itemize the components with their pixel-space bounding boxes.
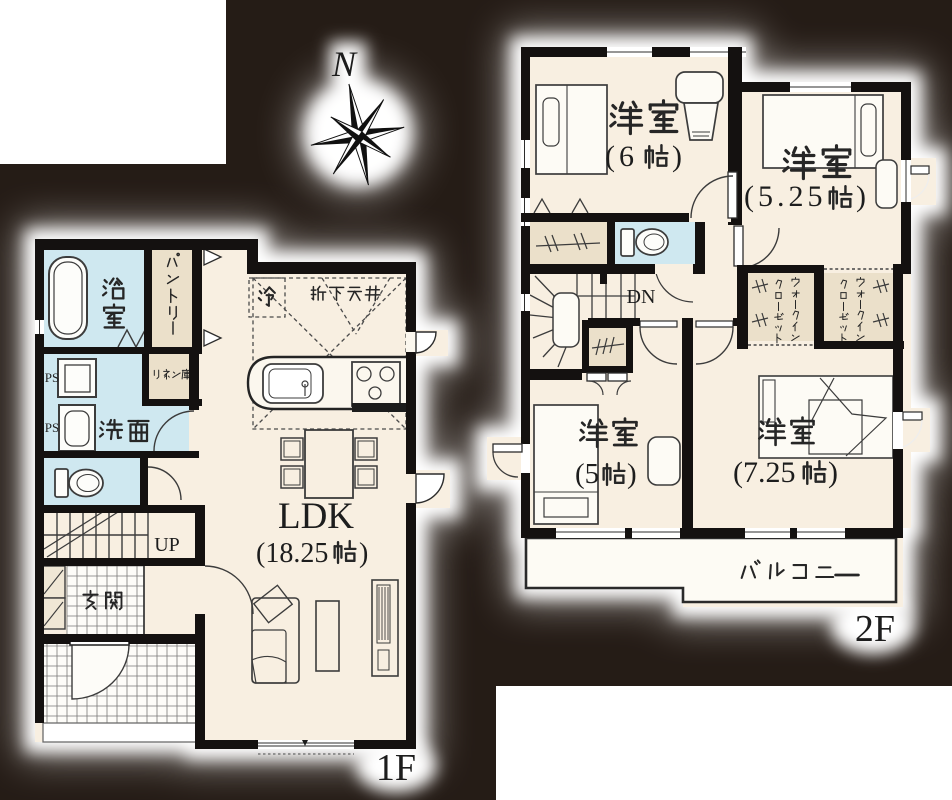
svg-text:(7.25: (7.25 — [733, 456, 796, 489]
svg-text:): ) — [828, 456, 838, 489]
svg-text:): ) — [856, 180, 866, 213]
svg-text:): ) — [672, 140, 682, 173]
svg-text:DN: DN — [627, 286, 656, 308]
svg-text:PS: PS — [45, 420, 59, 435]
svg-text:(5.25: (5.25 — [744, 180, 827, 213]
svg-text:LDK: LDK — [278, 496, 354, 537]
svg-text:PS: PS — [45, 370, 59, 385]
svg-text:): ) — [359, 538, 368, 569]
svg-text:N: N — [331, 44, 358, 84]
svg-text:2F: 2F — [855, 608, 895, 650]
svg-text:(5: (5 — [575, 458, 599, 490]
svg-text:(6: (6 — [605, 140, 638, 173]
svg-text:(18.25: (18.25 — [256, 538, 328, 569]
svg-text:): ) — [627, 458, 637, 490]
svg-text:UP: UP — [154, 534, 180, 556]
svg-text:1F: 1F — [376, 747, 416, 789]
